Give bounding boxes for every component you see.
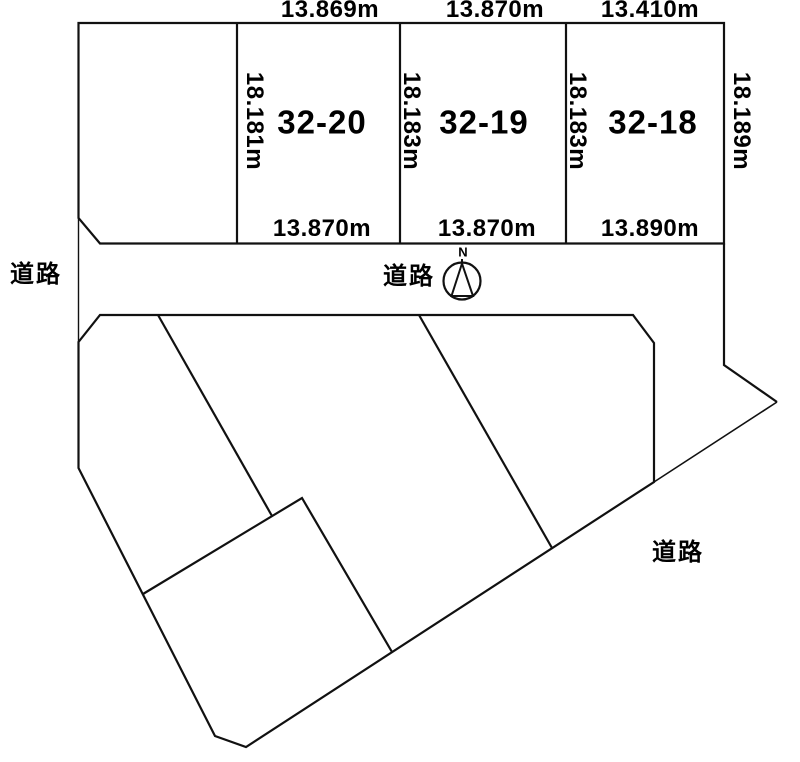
road-label-center: 道路 [383,265,435,289]
side-measurement-3: 18.183m [565,72,589,170]
right-road-boundary [724,244,777,403]
side-measurement-4: 18.189m [729,72,753,170]
top-measurement-32-20: 13.869m [281,0,379,22]
north-compass-icon [444,259,481,300]
top-measurement-32-19: 13.870m [446,0,544,22]
bottom-measurement-32-19: 13.870m [438,217,536,241]
road-boundary-diagonal [654,402,777,482]
land-plot-diagram: 13.869m 13.870m 13.410m 13.870m 13.870m … [0,0,800,762]
road-label-left: 道路 [10,263,62,287]
side-measurement-2: 18.183m [399,72,423,170]
lower-plots-outline [79,315,655,747]
bottom-measurement-32-20: 13.870m [273,217,371,241]
compass-north-label: N [458,246,467,259]
lower-divider-right [419,315,552,548]
plot-label-32-18: 32-18 [608,106,697,139]
plot-label-32-19: 32-19 [439,106,528,139]
lower-divider-left [158,315,272,516]
inner-plot-edges [143,498,392,652]
top-measurement-32-18: 13.410m [601,0,699,22]
plot-label-32-20: 32-20 [277,106,366,139]
bottom-measurement-32-18: 13.890m [601,217,699,241]
road-label-right: 道路 [652,541,704,565]
side-measurement-1: 18.181m [242,72,266,170]
